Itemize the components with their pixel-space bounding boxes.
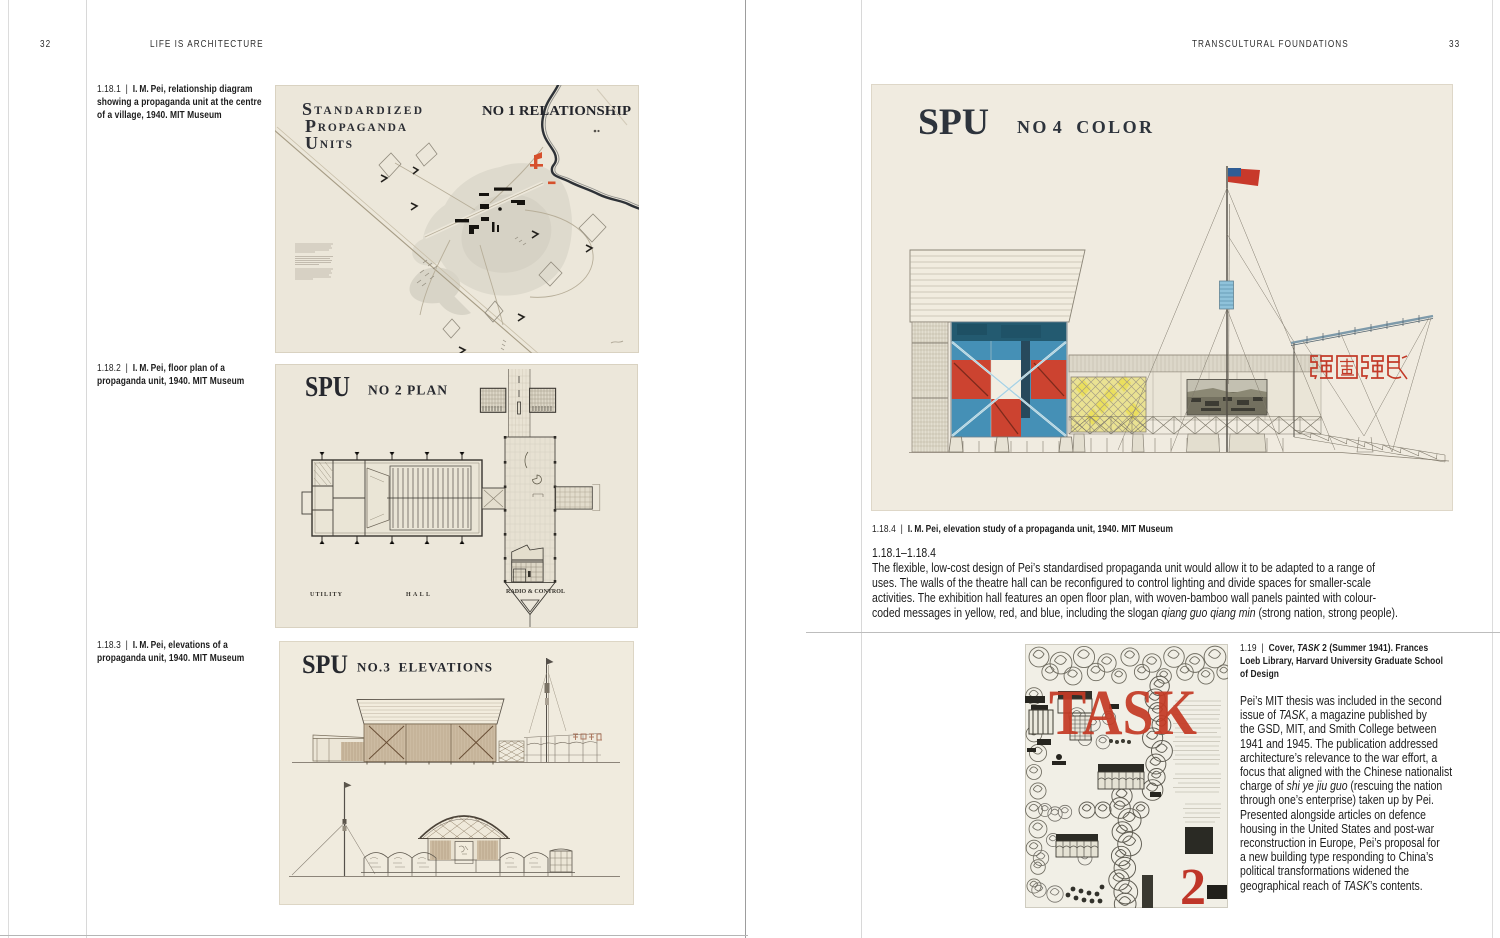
svg-text:NO 2 PLAN: NO 2 PLAN xyxy=(368,383,447,398)
svg-text:NO.3 ELEVATIONS: NO.3 ELEVATIONS xyxy=(357,660,492,675)
svg-text:NO 1 RELATIONSHIP: NO 1 RELATIONSHIP xyxy=(482,103,631,118)
svg-text:TASK: TASK xyxy=(1049,677,1197,749)
svg-text:2: 2 xyxy=(1180,859,1206,908)
svg-text:SPU: SPU xyxy=(302,650,348,679)
svg-text:UTILITY: UTILITY xyxy=(310,592,343,598)
svg-text:SPU: SPU xyxy=(305,372,350,403)
svg-text:SPU: SPU xyxy=(918,102,989,143)
svg-text:RADIO & CONTROL: RADIO & CONTROL xyxy=(506,589,565,595)
svg-text:NO 4 COLOR: NO 4 COLOR xyxy=(1017,117,1153,137)
